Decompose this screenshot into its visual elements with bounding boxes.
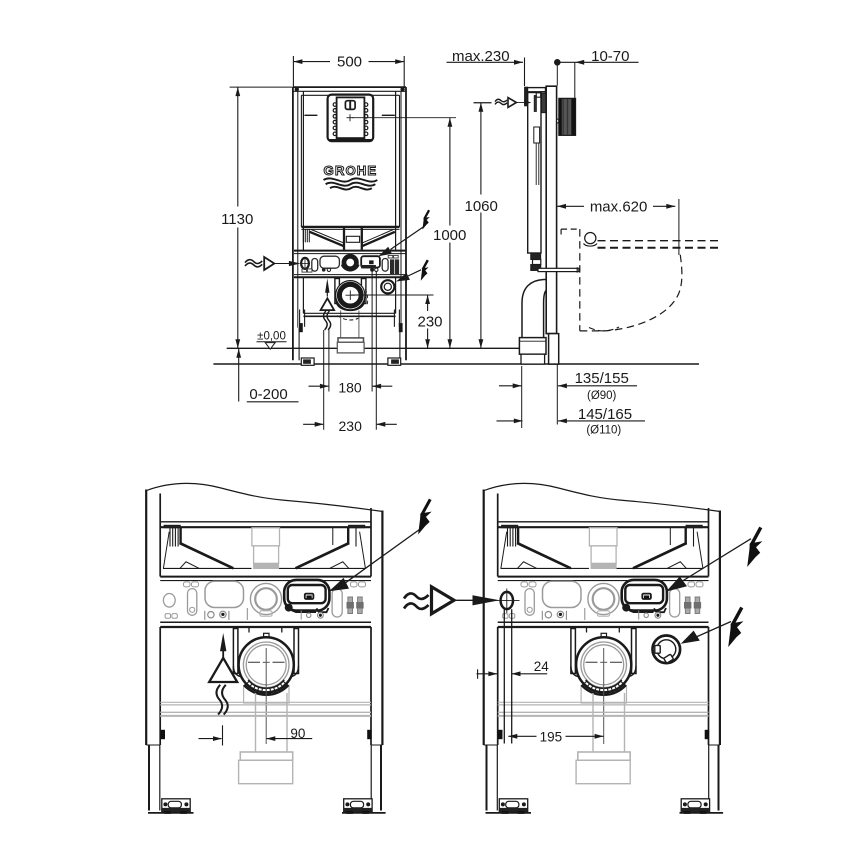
svg-text:145/165: 145/165 bbox=[578, 406, 632, 423]
svg-text:1130: 1130 bbox=[221, 211, 253, 228]
svg-text:195: 195 bbox=[540, 729, 563, 744]
svg-text:24: 24 bbox=[534, 659, 550, 674]
svg-text:(Ø110): (Ø110) bbox=[586, 425, 621, 437]
svg-text:135/155: 135/155 bbox=[575, 370, 629, 387]
svg-text:max.620: max.620 bbox=[590, 198, 648, 215]
svg-text:1000: 1000 bbox=[433, 227, 466, 244]
svg-text:0-200: 0-200 bbox=[249, 386, 287, 403]
svg-text:1060: 1060 bbox=[465, 198, 498, 215]
svg-text:500: 500 bbox=[337, 54, 362, 71]
svg-text:90: 90 bbox=[290, 726, 305, 741]
svg-text:230: 230 bbox=[417, 314, 442, 331]
svg-text:GROHE: GROHE bbox=[323, 163, 377, 178]
svg-text:180: 180 bbox=[338, 379, 362, 395]
svg-text:230: 230 bbox=[339, 418, 363, 434]
svg-text:±0,00: ±0,00 bbox=[257, 330, 286, 342]
svg-text:(Ø90): (Ø90) bbox=[587, 390, 617, 402]
